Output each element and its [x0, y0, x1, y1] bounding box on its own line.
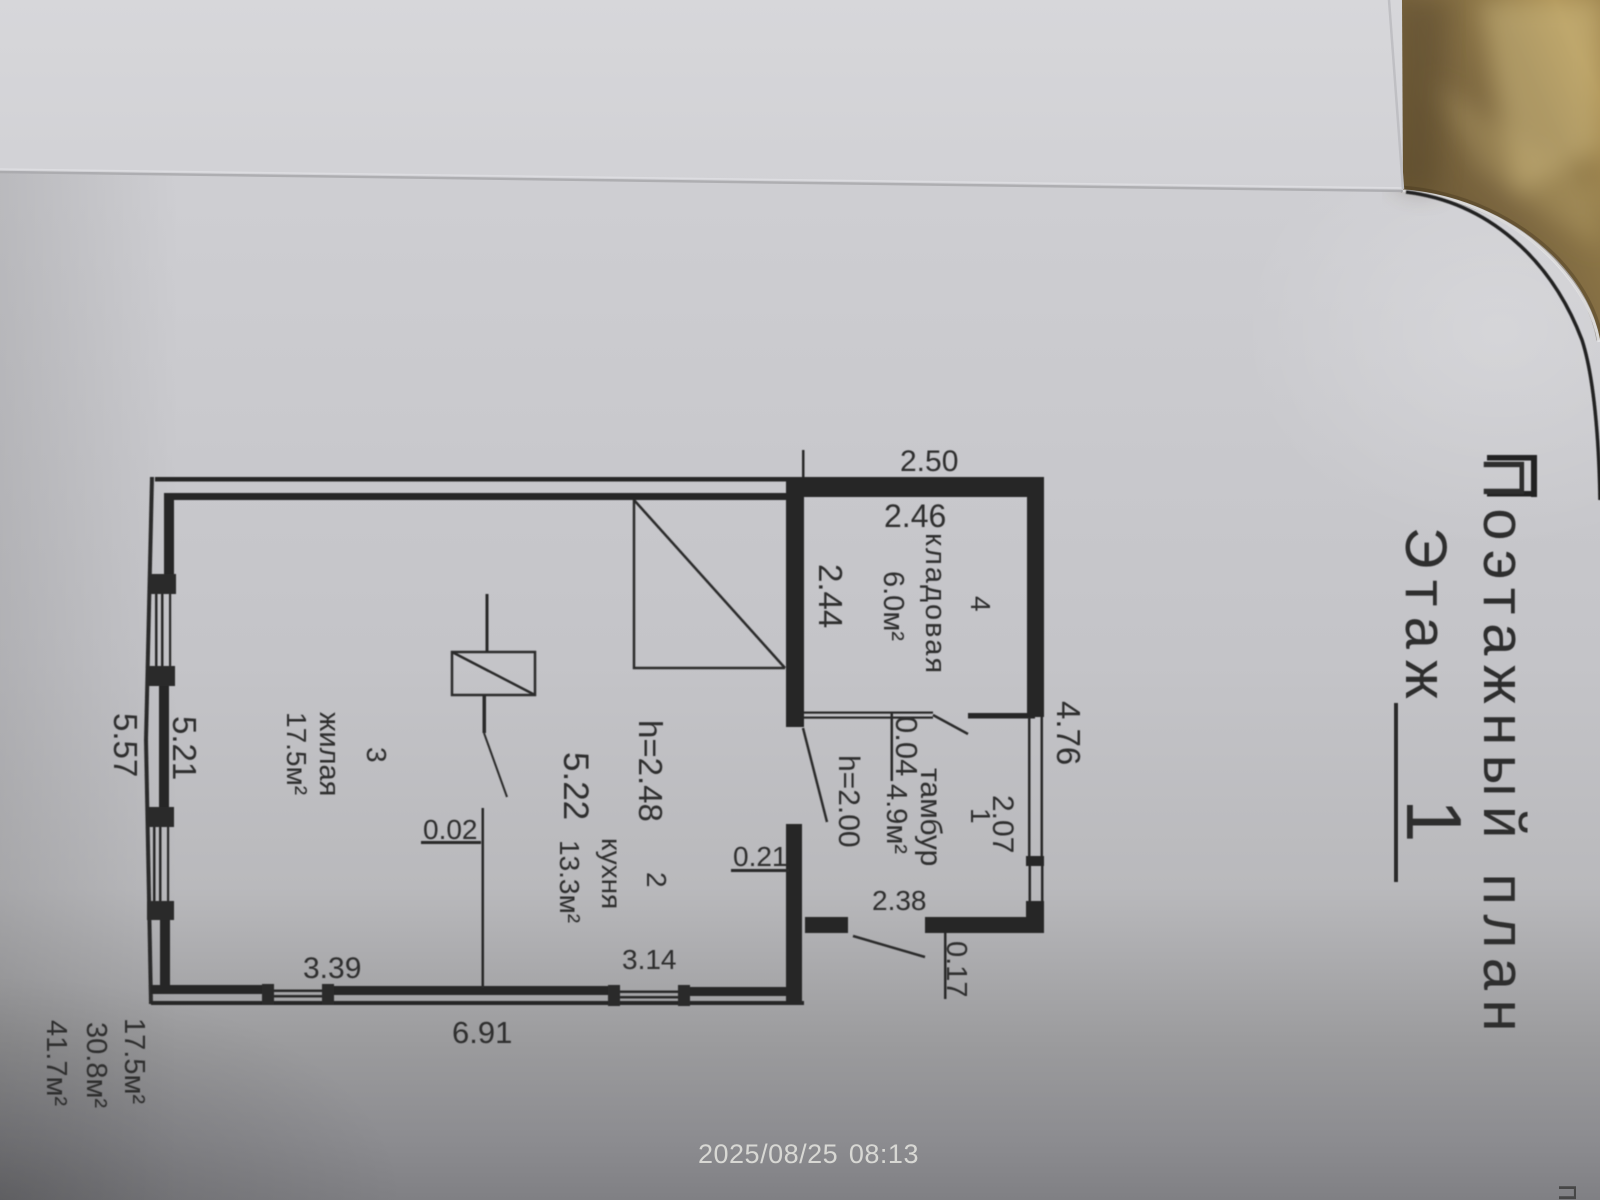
svg-text:п: п [1552, 1184, 1588, 1200]
svg-text:4.9м²: 4.9м² [880, 784, 912, 854]
svg-text:2.50: 2.50 [900, 445, 958, 478]
svg-text:2.38: 2.38 [872, 885, 927, 916]
svg-text:5.22: 5.22 [556, 752, 595, 820]
svg-text:5.57: 5.57 [107, 713, 144, 777]
svg-text:4: 4 [965, 596, 996, 612]
svg-text:0.21: 0.21 [733, 841, 788, 872]
svg-text:6.0м²: 6.0м² [877, 571, 909, 641]
svg-text:0.17: 0.17 [940, 941, 972, 997]
svg-text:30.8м²: 30.8м² [80, 1022, 112, 1108]
svg-text:4.76: 4.76 [1050, 701, 1087, 765]
svg-text:Поэтажный план: Поэтажный план [1471, 457, 1536, 1041]
svg-text:5.21: 5.21 [166, 716, 203, 780]
svg-text:2.07: 2.07 [986, 795, 1019, 853]
svg-text:3.39: 3.39 [303, 952, 361, 985]
svg-text:0.02: 0.02 [423, 814, 478, 845]
svg-text:кухня: кухня [596, 838, 627, 909]
svg-text:6.91: 6.91 [452, 1015, 512, 1050]
svg-text:17.5м²: 17.5м² [118, 1018, 150, 1104]
svg-text:2025/08/25 08:13: 2025/08/25 08:13 [698, 1139, 919, 1169]
svg-text:тамбур: тамбур [914, 768, 947, 866]
svg-text:17.5м²: 17.5м² [281, 712, 312, 795]
svg-text:1: 1 [1390, 799, 1478, 842]
svg-text:h=2.00: h=2.00 [832, 755, 865, 848]
svg-text:жилая: жилая [313, 712, 345, 796]
svg-text:2.44: 2.44 [812, 564, 849, 628]
svg-text:2: 2 [641, 872, 672, 888]
svg-text:3: 3 [361, 747, 392, 763]
svg-text:13.3м²: 13.3м² [554, 840, 585, 923]
svg-text:кладовая: кладовая [919, 533, 951, 675]
svg-text:3.14: 3.14 [622, 944, 677, 975]
svg-text:h=2.48: h=2.48 [632, 720, 669, 822]
svg-text:Этаж: Этаж [1393, 527, 1458, 710]
svg-text:41.7м²: 41.7м² [40, 1020, 72, 1106]
svg-text:2.46: 2.46 [884, 498, 946, 534]
